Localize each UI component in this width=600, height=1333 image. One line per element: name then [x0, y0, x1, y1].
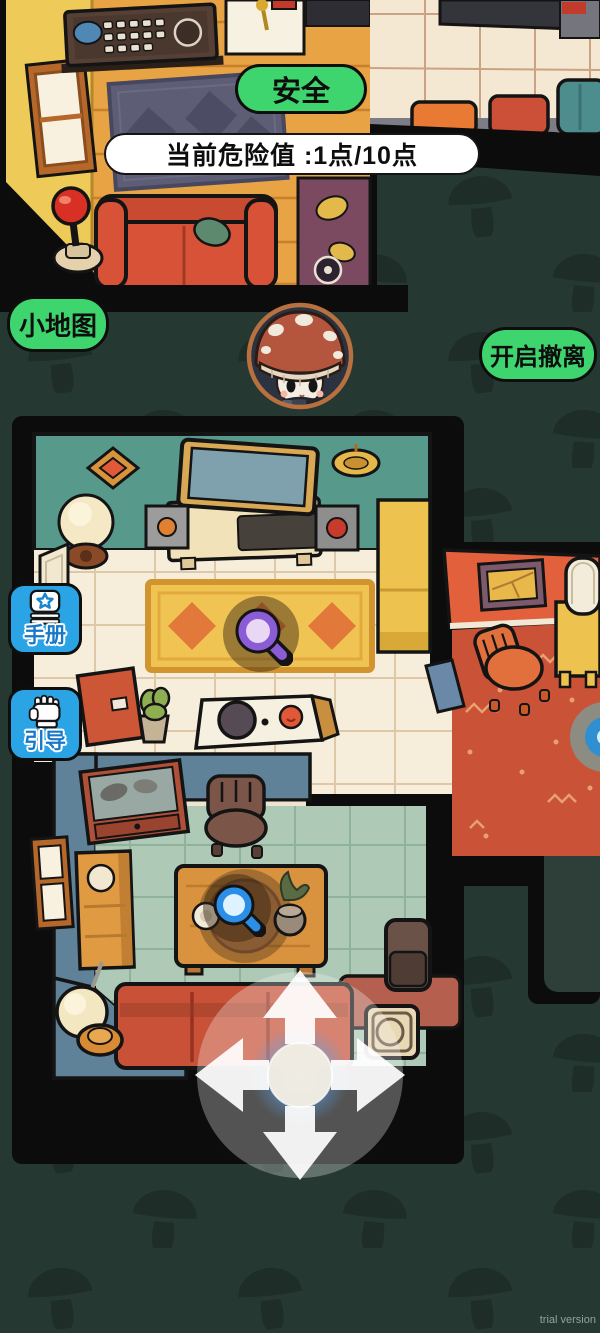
purple-mat	[298, 178, 370, 290]
magnifier-gray-icon	[585, 717, 600, 757]
brown-chair	[206, 776, 266, 858]
yellow-counter	[378, 500, 430, 652]
dpad-knob[interactable]	[268, 1043, 332, 1107]
player-avatar[interactable]	[246, 300, 354, 412]
guide-button-label: 引导	[24, 731, 66, 753]
window	[26, 59, 95, 176]
trial-version-label: trial version	[540, 1314, 596, 1326]
mushroom-avatar-icon	[246, 300, 354, 412]
dark-shelf	[306, 0, 370, 26]
magnifier-purple-icon	[229, 602, 293, 666]
danger-meter: 当前危险值 :1点/10点	[104, 133, 480, 175]
minimap-button-label: 小地图	[19, 306, 97, 343]
evacuate-button-label: 开启撤离	[490, 337, 586, 372]
wall-band	[82, 285, 408, 312]
orange-dresser	[76, 851, 134, 969]
speaker-left	[146, 506, 188, 548]
lamp-table	[226, 0, 304, 54]
fist-icon	[24, 693, 66, 731]
manual-button-label: 手册	[24, 625, 66, 647]
minimap-button[interactable]: 小地图	[7, 296, 109, 352]
red-cushion	[490, 96, 548, 134]
danger-meter-label: 当前危险值 :1点/10点	[166, 136, 418, 172]
search-hotspot-rug[interactable]	[223, 596, 299, 672]
guide-button[interactable]: 引导	[8, 687, 82, 761]
magnifier-blue-icon	[208, 879, 266, 937]
tv	[178, 439, 318, 514]
stereo-shelf	[59, 4, 224, 73]
red-sofa-top	[96, 196, 276, 288]
orange-room	[426, 550, 600, 856]
manual-button[interactable]: 手册	[8, 583, 82, 655]
lounge-window	[31, 837, 73, 929]
display-cabinet	[80, 760, 188, 844]
teal-chair	[558, 80, 600, 134]
game-screen: 安全 当前危险值 :1点/10点 小地图 开启撤离	[0, 0, 600, 1333]
book-icon	[24, 589, 66, 625]
safety-badge-label: 安全	[272, 68, 330, 110]
evacuate-button[interactable]: 开启撤离	[479, 327, 597, 382]
dpad[interactable]	[185, 960, 415, 1190]
speaker-right	[316, 506, 358, 550]
safety-badge: 安全	[235, 64, 367, 114]
arch-chair	[566, 558, 600, 614]
search-hotspot-table[interactable]	[203, 874, 271, 942]
